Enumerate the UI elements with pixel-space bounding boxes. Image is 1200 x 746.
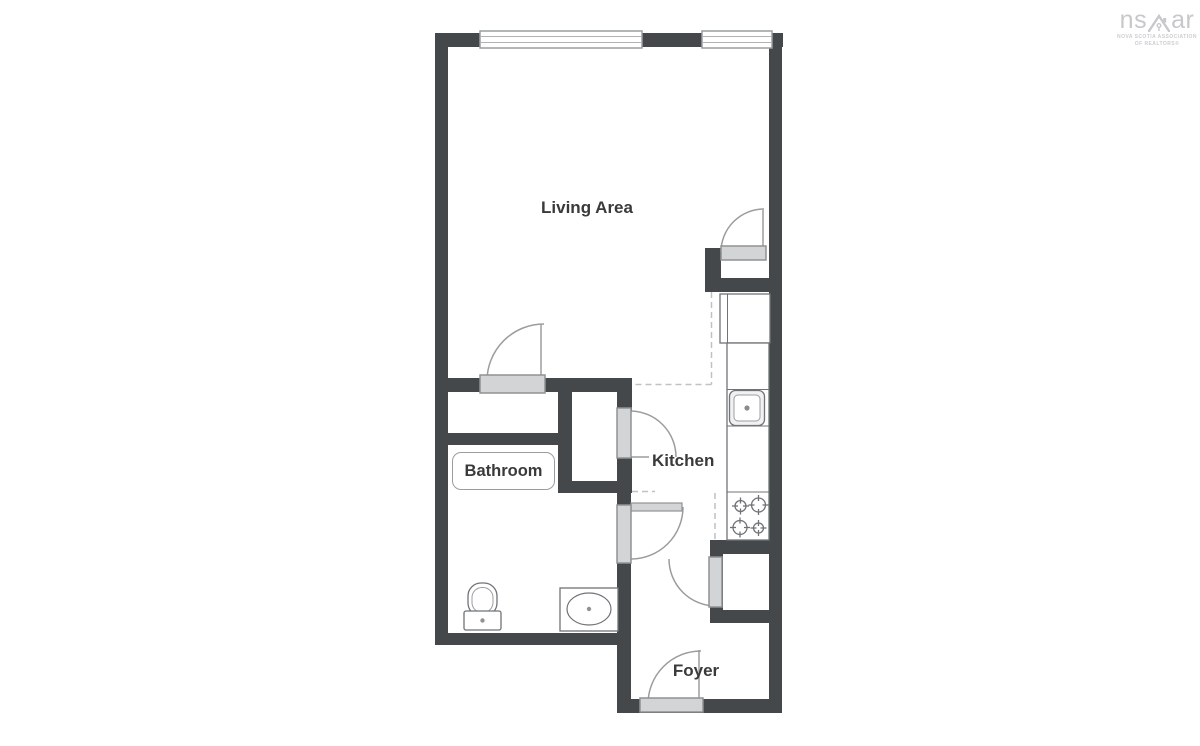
wall-lower-closet-bottom	[710, 610, 782, 623]
refrigerator-icon	[720, 294, 770, 343]
nsar-logo-tagline: NOVA SCOTIA ASSOCIATION OF REALTORS®	[1115, 34, 1199, 48]
wall-bath-right	[558, 378, 572, 493]
tagline-line1: NOVA SCOTIA ASSOCIATION	[1115, 34, 1199, 41]
door-bathroom	[617, 503, 683, 563]
logo-text-left: ns	[1120, 8, 1147, 33]
floorplan-page: Living Area Bathroom Kitchen Foyer ns ar…	[0, 0, 1200, 746]
window-top-small	[702, 31, 772, 48]
window-top-large	[480, 31, 642, 48]
kitchen-sink-icon	[730, 391, 765, 426]
toilet-icon	[464, 583, 501, 630]
door-living-closet	[480, 324, 545, 393]
wall-bathroom-bottom	[435, 633, 617, 645]
door-lower-closet	[669, 557, 722, 607]
bathroom-label-text: Bathroom	[465, 462, 543, 481]
vanity-sink-icon	[560, 588, 618, 631]
wall-left	[435, 33, 448, 645]
wall-upper-closet-bottom	[705, 278, 782, 292]
room-label-foyer: Foyer	[673, 661, 719, 681]
room-label-bathroom: Bathroom	[452, 452, 555, 490]
door-upper-closet	[721, 209, 766, 260]
door-entry	[640, 650, 703, 712]
nsar-logo: ns ar NOVA SCOTIA ASSOCIATION OF REALTOR…	[1115, 8, 1199, 48]
floorplan-drawing	[0, 0, 1200, 746]
tagline-line2: OF REALTORS®	[1115, 41, 1199, 48]
wall-foyer-left	[617, 561, 631, 713]
windows	[480, 31, 772, 48]
room-label-kitchen: Kitchen	[652, 451, 714, 471]
nsar-logo-brand: ns ar	[1115, 8, 1199, 33]
house-roof-icon	[1148, 13, 1170, 32]
logo-text-right: ar	[1171, 8, 1194, 33]
wall-midcloset-right-upper	[617, 378, 632, 411]
room-label-living-area: Living Area	[541, 198, 633, 218]
wall-bath-closet-bottom	[448, 433, 572, 445]
